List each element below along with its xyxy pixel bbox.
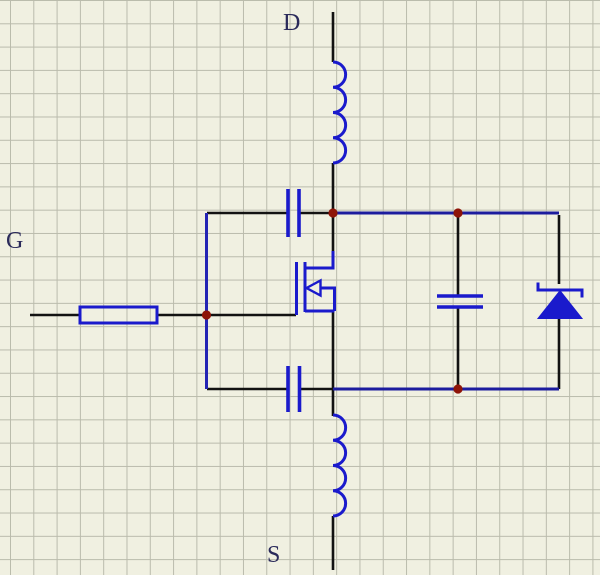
resistor-body[interactable] — [80, 307, 157, 323]
schematic-canvas — [0, 0, 600, 575]
source-terminal-label[interactable]: S — [267, 543, 280, 567]
inductor-coil[interactable] — [333, 415, 346, 516]
wires-black — [30, 12, 559, 570]
capacitor-gate-drain[interactable] — [288, 189, 299, 237]
junction-dot — [202, 310, 211, 319]
drain-terminal-label[interactable]: D — [283, 11, 300, 35]
mosfet-body-arrow-icon — [307, 281, 321, 296]
junction-dot — [453, 384, 462, 393]
schottky-diode[interactable] — [538, 283, 582, 319]
schematic-grid-background: D G S — [0, 0, 600, 575]
capacitor-gate-source[interactable] — [288, 366, 300, 412]
mosfet-drain-stub[interactable] — [305, 251, 333, 268]
resistor-gate[interactable] — [80, 307, 157, 323]
wires-blue — [207, 213, 560, 389]
diode-triangle[interactable] — [539, 292, 581, 319]
nmos-transistor[interactable] — [297, 251, 335, 315]
inductor-drain[interactable] — [333, 62, 346, 163]
junction-dot — [328, 208, 337, 217]
junction-dot — [453, 208, 462, 217]
mosfet-body-connector[interactable] — [321, 288, 335, 311]
inductor-source[interactable] — [333, 415, 346, 516]
inductor-coil[interactable] — [333, 62, 346, 163]
gate-terminal-label[interactable]: G — [6, 229, 23, 253]
capacitor-drain-source[interactable] — [437, 296, 483, 307]
